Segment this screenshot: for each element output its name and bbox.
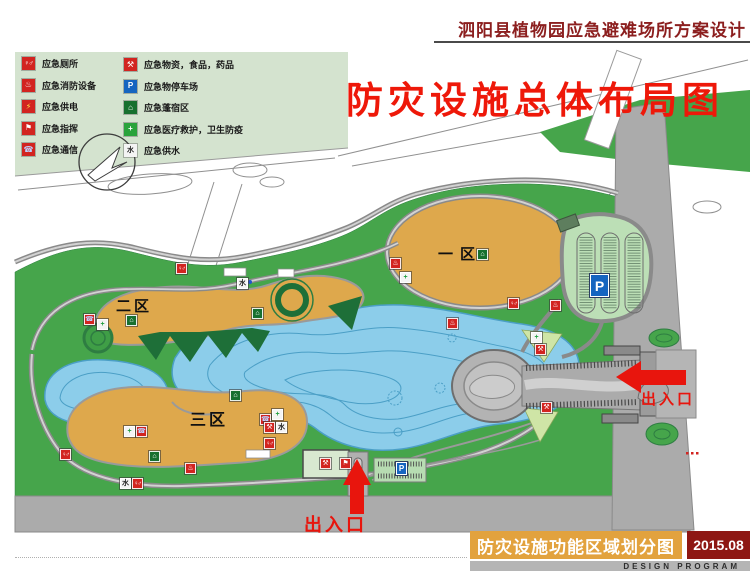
legend-row: ♀♂应急厕所 <box>22 57 96 70</box>
design-sheet: 泗阳县植物园应急避难场所方案设计 防灾设施总体布局图 ♀♂应急厕所♨应急消防设备… <box>0 0 750 573</box>
water-icon: 水 <box>124 144 137 157</box>
legend-label: 应急指挥 <box>42 122 78 135</box>
water-icon: 水 <box>237 278 248 289</box>
medical-icon: + <box>531 332 542 343</box>
phone-icon: ☎ <box>136 426 147 437</box>
zone-2-label: 二区 <box>116 295 152 316</box>
fire-icon: ♨ <box>185 463 196 474</box>
legend-row: ♨应急消防设备 <box>22 79 96 92</box>
legend-label: 应急医疗救护，卫生防疫 <box>144 123 243 136</box>
command-icon: ⚑ <box>340 458 351 469</box>
legend-column-right: ⚒应急物资，食品，药品P应急物停车场⌂应急蓬宿区+应急医疗救护，卫生防疫水应急供… <box>124 58 243 166</box>
legend-label: 应急通信 <box>42 143 78 156</box>
legend-row: 水应急供水 <box>124 144 243 157</box>
parking-icon: P <box>124 80 137 93</box>
supplies-icon: ⚒ <box>541 402 552 413</box>
tent-icon: ⌂ <box>477 249 488 260</box>
zone-3-label: 三区 <box>190 406 228 430</box>
phone-icon: ☎ <box>84 314 95 325</box>
toilet-icon: ♀♂ <box>22 57 35 70</box>
command-icon: ⚑ <box>22 122 35 135</box>
toilet-icon: ♀♂ <box>264 438 275 449</box>
fire-icon: ♨ <box>390 258 401 269</box>
header-rule <box>434 41 750 43</box>
footer-date-badge: 2015.08 <box>687 531 750 559</box>
toilet-icon: ♀♂ <box>508 298 519 309</box>
power-icon: ⚡ <box>22 100 35 113</box>
tent-icon: ⌂ <box>126 315 137 326</box>
legend-row: ⚒应急物资，食品，药品 <box>124 58 243 71</box>
east-entrance-label: 出入口 <box>641 388 695 409</box>
medical-icon: + <box>272 409 283 420</box>
medical-icon: + <box>124 123 137 136</box>
zone-1-label: 一区 <box>438 243 482 264</box>
tent-icon: ⌂ <box>230 390 241 401</box>
legend-label: 应急物资，食品，药品 <box>144 58 234 71</box>
legend-row: ⚡应急供电 <box>22 100 96 113</box>
medical-icon: + <box>400 272 411 283</box>
toilet-icon: ♀♂ <box>132 478 143 489</box>
tent-icon: ⌂ <box>149 451 160 462</box>
tent-icon: ⌂ <box>124 101 137 114</box>
water-icon: 水 <box>120 478 131 489</box>
legend-label: 应急物停车场 <box>144 80 198 93</box>
legend-row: P应急物停车场 <box>124 80 243 93</box>
legend-label: 应急厕所 <box>42 57 78 70</box>
footer-dotted-rule <box>15 557 467 558</box>
fire-icon: ♨ <box>550 300 561 311</box>
sheet-title: 泗阳县植物园应急避难场所方案设计 <box>458 16 746 41</box>
fire-icon: ♨ <box>22 79 35 92</box>
toilet-icon: ♀♂ <box>176 263 187 274</box>
legend-row: +应急医疗救护，卫生防疫 <box>124 123 243 136</box>
supplies-icon: ⚒ <box>264 422 275 433</box>
fire-icon: ♨ <box>447 318 458 329</box>
medical-icon: + <box>124 426 135 437</box>
tent-icon: ⌂ <box>252 308 263 319</box>
legend-label: 应急供水 <box>144 144 180 157</box>
legend-label: 应急消防设备 <box>42 79 96 92</box>
supplies-icon: ⚒ <box>320 458 331 469</box>
medical-icon: + <box>97 319 108 330</box>
legend-label: 应急蓬宿区 <box>144 101 189 114</box>
toilet-icon: ♀♂ <box>60 449 71 460</box>
legend-row: ☎应急通信 <box>22 143 96 156</box>
map-title: 防灾设施总体布局图 <box>346 70 724 124</box>
parking-p-sign: P <box>590 274 609 297</box>
supplies-icon: ⚒ <box>535 344 546 355</box>
legend-row: ⌂应急蓬宿区 <box>124 101 243 114</box>
legend-column-left: ♀♂应急厕所♨应急消防设备⚡应急供电⚑应急指挥☎应急通信 <box>22 57 96 165</box>
south-entrance-label: 出入口 <box>304 511 367 537</box>
parking-lot <box>557 214 652 321</box>
legend-row: ⚑应急指挥 <box>22 122 96 135</box>
supplies-icon: ⚒ <box>124 58 137 71</box>
footer-bar: DESIGN PROGRAM <box>470 561 750 571</box>
footer-subtitle: DESIGN PROGRAM <box>623 562 740 571</box>
south-parking-p-sign: P <box>396 462 407 475</box>
legend-label: 应急供电 <box>42 100 78 113</box>
water-icon: 水 <box>276 422 287 433</box>
phone-icon: ☎ <box>22 143 35 156</box>
footer-title: 防灾设施功能区域划分图 <box>470 531 682 559</box>
